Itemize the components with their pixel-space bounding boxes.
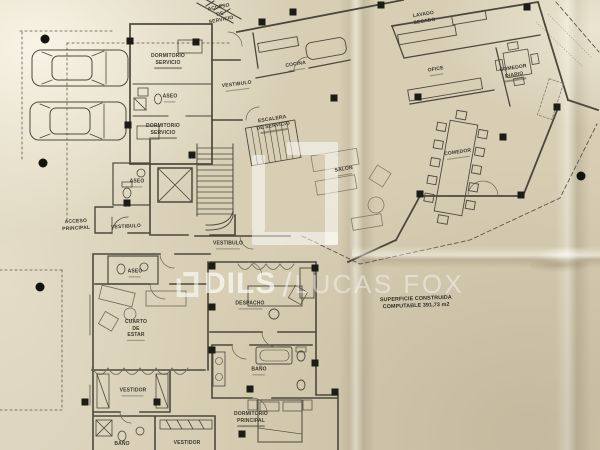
lower-aseo bbox=[108, 256, 158, 284]
brand-dils: DILS bbox=[204, 269, 276, 299]
dining-table bbox=[420, 107, 490, 228]
upper-aseo bbox=[113, 163, 150, 205]
dils-logo-icon bbox=[176, 272, 199, 297]
elevator bbox=[158, 168, 192, 202]
floorplan-svg bbox=[0, 0, 600, 450]
logo-bar-left bbox=[252, 155, 265, 232]
master-bed bbox=[248, 400, 312, 442]
floor-plan-photo: DILS / LUCAS FOX ACCESO DE SERVICIODORMI… bbox=[0, 0, 600, 450]
brand-lucas-fox: LUCAS FOX bbox=[295, 271, 465, 297]
service-rooms-walls bbox=[130, 24, 212, 164]
garage-cars bbox=[30, 50, 128, 140]
laundry-counters bbox=[398, 10, 487, 44]
wardrobes bbox=[96, 374, 212, 441]
door-arcs bbox=[120, 32, 498, 423]
kitchen-counters bbox=[258, 37, 348, 61]
logo-bar-top bbox=[287, 142, 338, 155]
master-bath-fixtures bbox=[213, 347, 306, 390]
right-wing-walls bbox=[237, 0, 598, 262]
salon-furniture bbox=[311, 79, 563, 231]
dashed-site-line bbox=[302, 2, 599, 264]
main-entrance bbox=[95, 207, 150, 233]
brand-watermark: DILS / LUCAS FOX bbox=[176, 270, 464, 298]
property-boundary-dotted bbox=[0, 31, 230, 410]
living-room-furniture bbox=[98, 285, 186, 331]
brand-separator-slash: / bbox=[282, 268, 291, 301]
main-staircase bbox=[197, 144, 233, 230]
service-entry-steps bbox=[197, 0, 241, 23]
logo-bar-bottom bbox=[252, 232, 338, 245]
service-rooms-furniture bbox=[134, 40, 202, 139]
